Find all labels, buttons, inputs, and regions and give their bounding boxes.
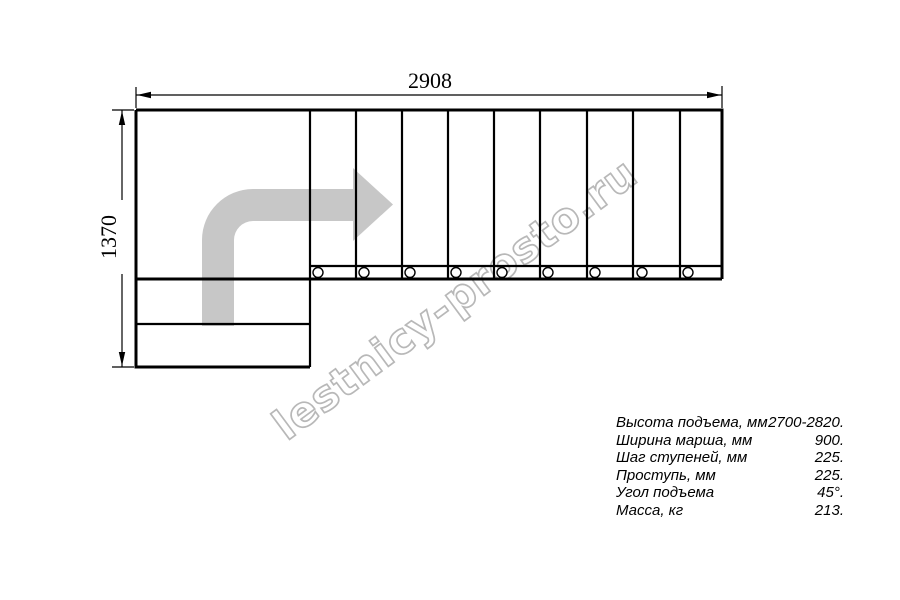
- spec-table: Высота подъема, мм 2700-2820. Ширина мар…: [616, 414, 844, 519]
- spec-value: 900.: [815, 432, 844, 450]
- spec-label: Ширина марша, мм: [616, 432, 752, 450]
- spec-value: 225.: [815, 449, 844, 467]
- spec-label: Угол подъема: [616, 484, 714, 502]
- spec-label: Шаг ступеней, мм: [616, 449, 747, 467]
- direction-arrow-icon: [202, 168, 393, 326]
- spec-label: Проступь, мм: [616, 467, 716, 485]
- tread-marker-circles: [313, 268, 693, 278]
- spec-value: 225.: [815, 467, 844, 485]
- spec-label: Высота подъема, мм: [616, 414, 768, 432]
- spec-value: 45°.: [817, 484, 844, 502]
- dimension-height-label: 1370: [96, 215, 121, 259]
- spec-row: Высота подъема, мм 2700-2820.: [616, 414, 844, 432]
- staircase-drawing-page: lestnicy-prosto.ru: [0, 0, 900, 600]
- dimension-width-label: 2908: [408, 68, 452, 93]
- spec-value: 213.: [815, 502, 844, 520]
- spec-value: 2700-2820.: [768, 414, 844, 432]
- spec-row: Масса, кг 213.: [616, 502, 844, 520]
- spec-label: Масса, кг: [616, 502, 683, 520]
- spec-row: Шаг ступеней, мм 225.: [616, 449, 844, 467]
- spec-row: Ширина марша, мм 900.: [616, 432, 844, 450]
- spec-row: Проступь, мм 225.: [616, 467, 844, 485]
- spec-row: Угол подъема 45°.: [616, 484, 844, 502]
